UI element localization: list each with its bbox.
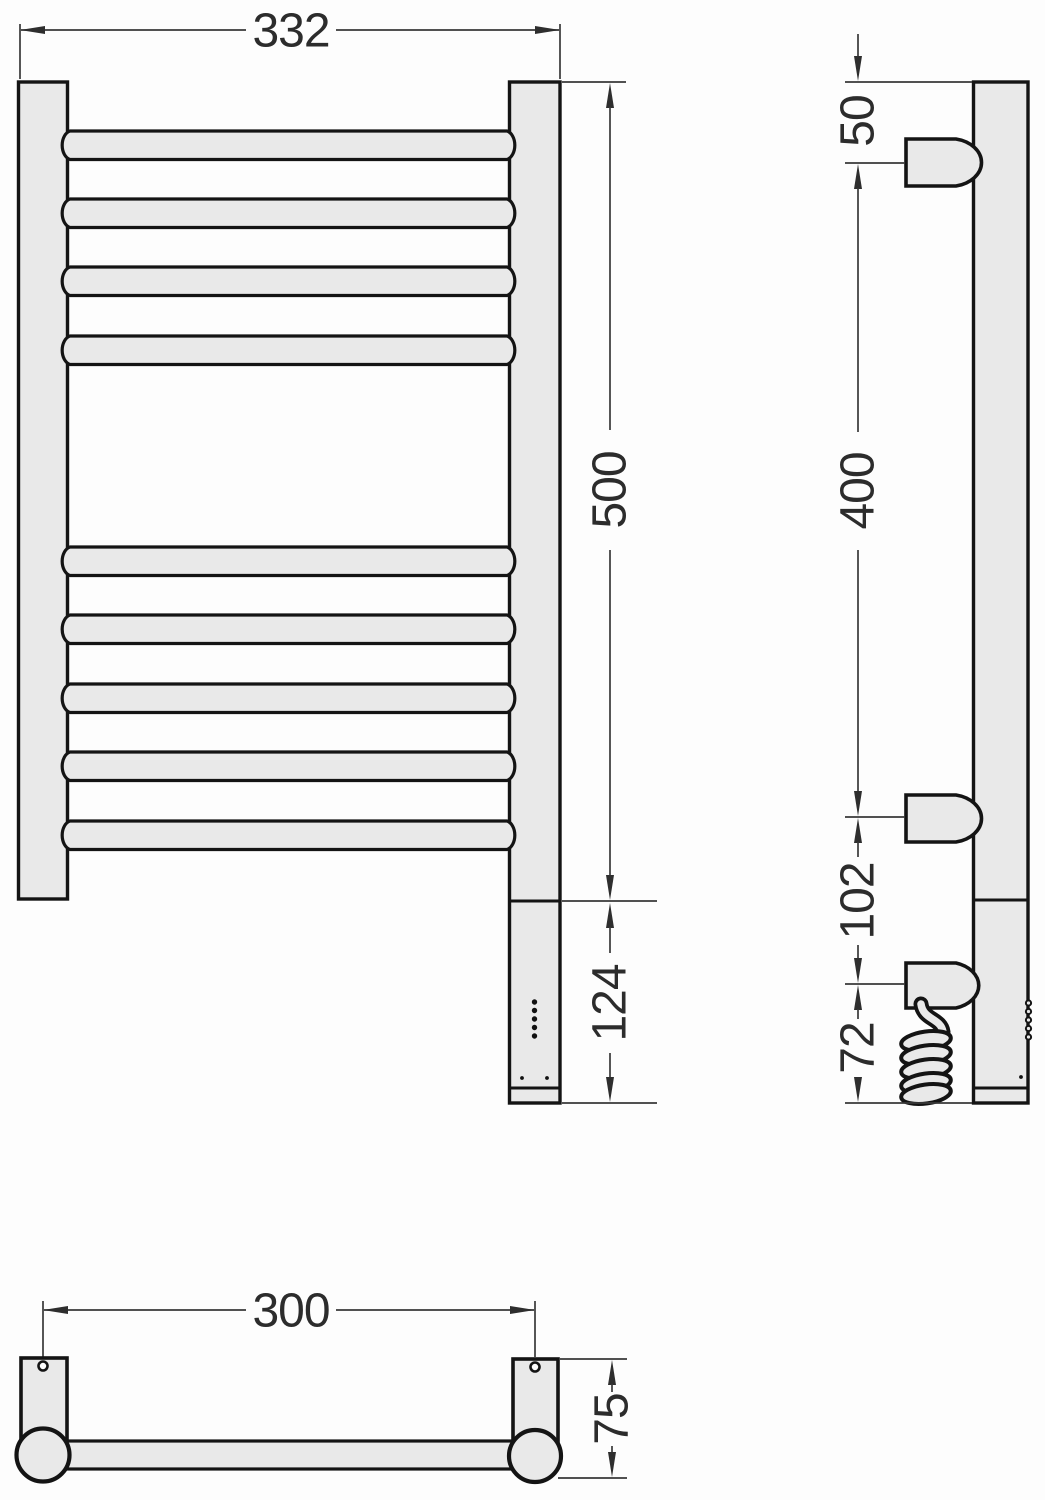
power-cable-coil <box>900 1004 952 1107</box>
dim-overall-height: 500 <box>562 82 657 901</box>
dim-overall-width: 332 <box>20 5 560 80</box>
left-mount-hole <box>39 1362 48 1371</box>
front-left-post <box>19 82 68 899</box>
front-bar <box>62 199 515 228</box>
front-bar <box>62 267 515 296</box>
arrow-down-icon <box>606 875 614 900</box>
side-post <box>974 82 1029 1103</box>
arrow-down-icon <box>854 791 862 816</box>
side-view: 50 400 102 72 <box>832 34 1032 1107</box>
dim-label-bracket-spacing: 400 <box>832 452 885 529</box>
arrow-down-icon <box>606 1077 614 1102</box>
arrow-down-icon <box>608 1452 616 1477</box>
dim-label-wall-depth: 75 <box>586 1393 639 1444</box>
arrow-up-icon <box>854 985 862 1010</box>
side-screw-dot <box>1019 1075 1023 1079</box>
arrow-up-icon <box>854 164 862 189</box>
dim-label-bottom-offset: 72 <box>832 1022 885 1073</box>
front-bar <box>62 684 515 713</box>
right-mount-hole <box>531 1363 540 1372</box>
bottom-bar <box>43 1441 535 1469</box>
front-bar <box>62 336 515 365</box>
wall-bracket-top <box>906 139 982 186</box>
arrow-down-icon <box>854 958 862 983</box>
technical-drawing-canvas: 332 <box>0 0 1045 1500</box>
dim-label-lower-span: 102 <box>832 862 885 939</box>
dim-label-overall-width: 332 <box>252 5 329 58</box>
front-bar <box>62 547 515 576</box>
arrow-up-icon <box>608 1360 616 1385</box>
arrow-up-icon <box>854 818 862 843</box>
arrow-left-icon <box>20 26 45 34</box>
bottom-view: 300 75 <box>17 1285 639 1483</box>
dim-wall-depth: 75 <box>558 1359 639 1478</box>
front-view: 332 <box>19 5 658 1104</box>
dim-lower-bracket-to-cable: 102 <box>832 818 906 984</box>
dim-label-overall-height: 500 <box>584 451 637 528</box>
arrow-right-icon <box>510 1306 535 1314</box>
arrow-right-icon <box>535 26 560 34</box>
front-bar <box>62 752 515 781</box>
front-rungs <box>62 131 515 850</box>
dim-mounting-width: 300 <box>43 1285 535 1358</box>
front-bar <box>62 821 515 850</box>
front-right-post-housing <box>510 82 561 1103</box>
towel-rail-drawing: 332 <box>0 0 1045 1500</box>
dim-label-mounting-width: 300 <box>252 1285 329 1338</box>
dim-housing-height: 124 <box>562 903 657 1103</box>
dim-label-top-offset: 50 <box>832 95 885 146</box>
arrow-up-icon <box>606 903 614 928</box>
arrow-up-icon <box>606 83 614 108</box>
dim-bracket-spacing: 400 <box>832 164 906 817</box>
left-post-cross-section <box>17 1429 70 1482</box>
right-post-cross-section <box>509 1430 561 1482</box>
front-bar <box>62 615 515 644</box>
dim-label-housing-height: 124 <box>584 964 637 1041</box>
arrow-left-icon <box>43 1306 68 1314</box>
arrow-down-icon <box>854 56 862 81</box>
arrow-down-icon <box>854 1077 862 1102</box>
front-bar <box>62 131 515 160</box>
wall-bracket-middle <box>906 795 982 842</box>
